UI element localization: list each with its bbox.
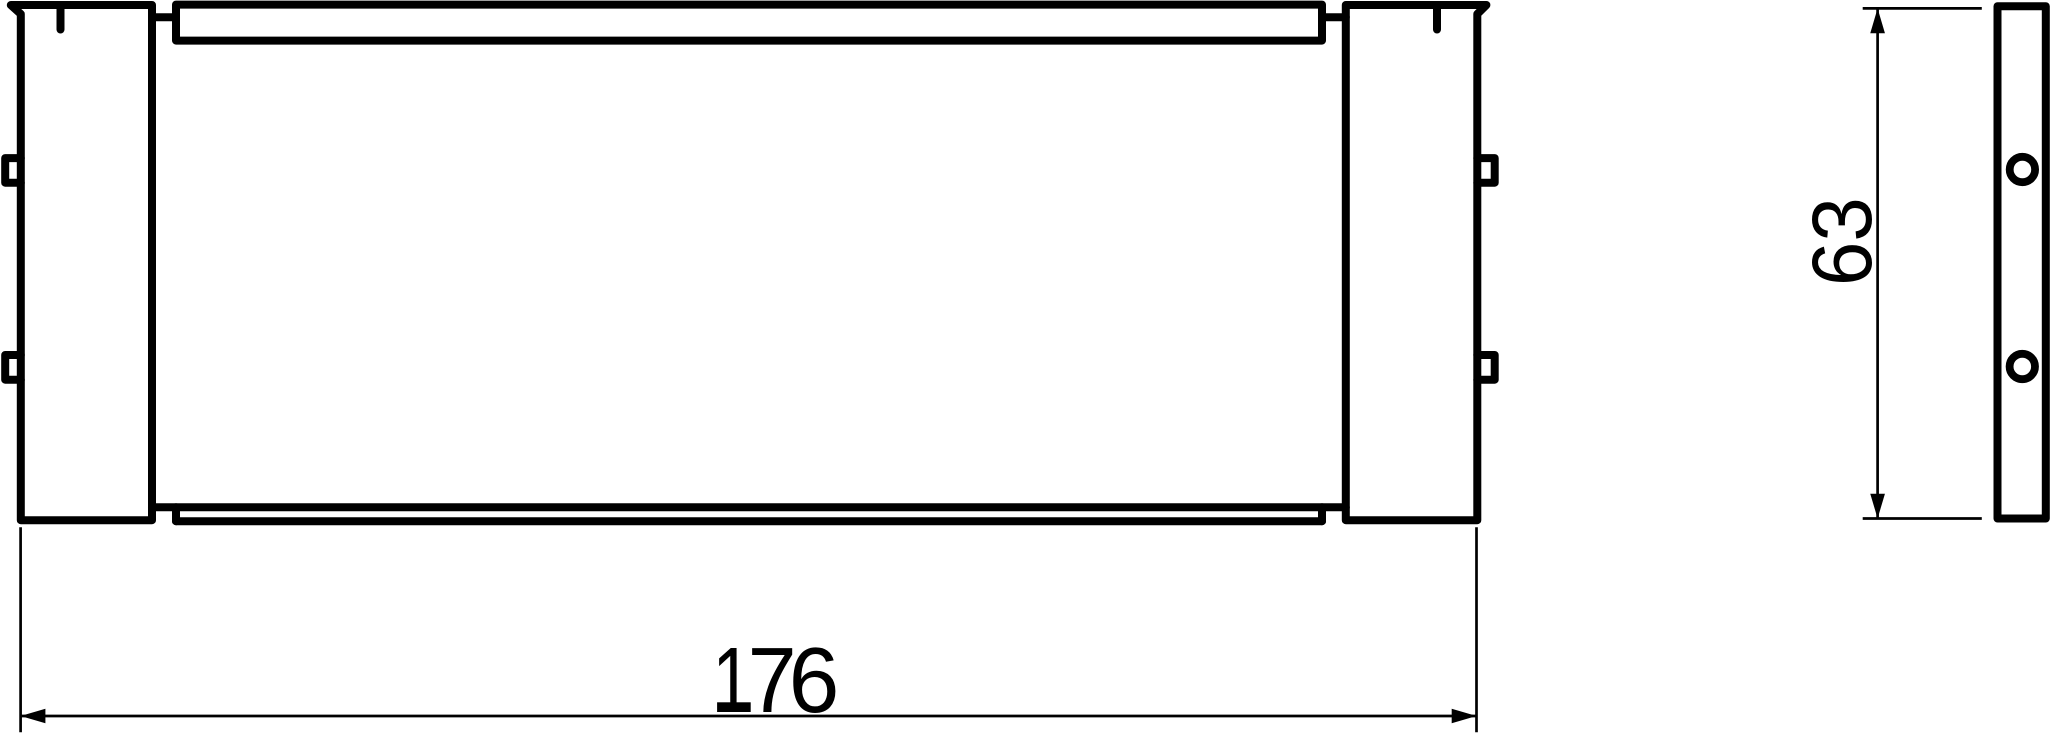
svg-text:6: 6 — [789, 628, 840, 732]
svg-text:63: 63 — [1795, 197, 1889, 286]
svg-text:1: 1 — [712, 628, 752, 732]
